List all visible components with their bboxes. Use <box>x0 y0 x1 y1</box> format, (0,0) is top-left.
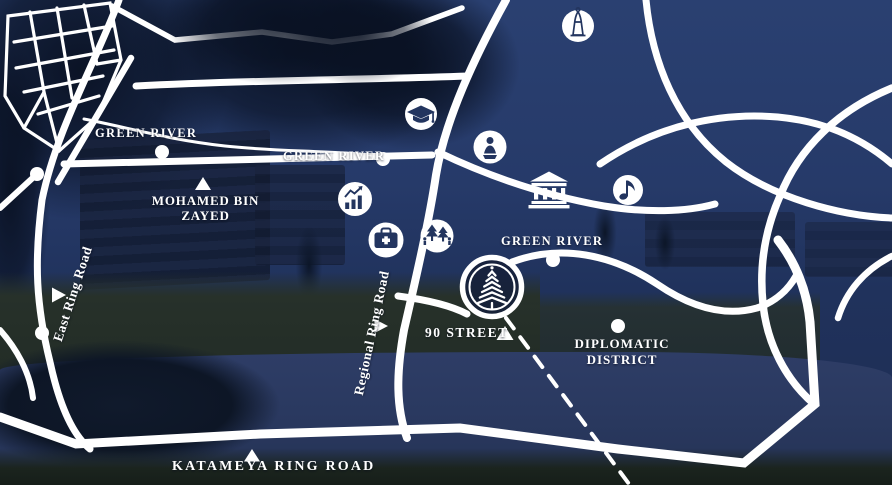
label-diplomatic-district: DIPLOMATIC DISTRICT <box>572 336 672 368</box>
monument-icon <box>562 8 594 42</box>
label-90-street: 90 STREET <box>425 325 509 341</box>
label-green-river-lower: GREEN RIVER <box>501 234 603 249</box>
map-artwork <box>0 0 892 485</box>
road-arc-bottom-left <box>0 330 33 398</box>
park-trees-icon <box>421 220 454 253</box>
museum-icon <box>529 172 570 209</box>
label-green-river-upper: GREEN RIVER <box>95 126 197 141</box>
medical-kit-icon <box>369 223 404 258</box>
statue-icon <box>474 131 507 164</box>
road-through-pois <box>438 152 715 211</box>
project-tree-logo <box>463 258 522 317</box>
music-note-icon <box>613 175 643 205</box>
road-katameya-ring <box>0 240 815 463</box>
road-right-edge-arc <box>838 256 892 318</box>
road-top-zigzag <box>112 6 462 42</box>
road-regional-ring <box>398 0 506 438</box>
label-green-river-middle: GREEN RIVER <box>283 149 385 164</box>
growth-chart-icon <box>338 182 372 216</box>
label-pointers <box>52 177 514 462</box>
pointer-mohamed-bin-zayed <box>195 177 211 190</box>
road-upper-horizontal <box>136 76 468 86</box>
road-right-arc-2 <box>600 116 892 164</box>
graduation-cap-icon <box>405 98 437 130</box>
location-map: GREEN RIVER GREEN RIVER GREEN RIVER MOHA… <box>0 0 892 485</box>
label-katameya-ring-road: KATAMEYA RING ROAD <box>172 459 375 475</box>
label-mohamed-bin-zayed: MOHAMED BIN ZAYED <box>138 193 273 223</box>
road-east-ring <box>37 0 119 449</box>
road-spur-left <box>0 174 37 208</box>
